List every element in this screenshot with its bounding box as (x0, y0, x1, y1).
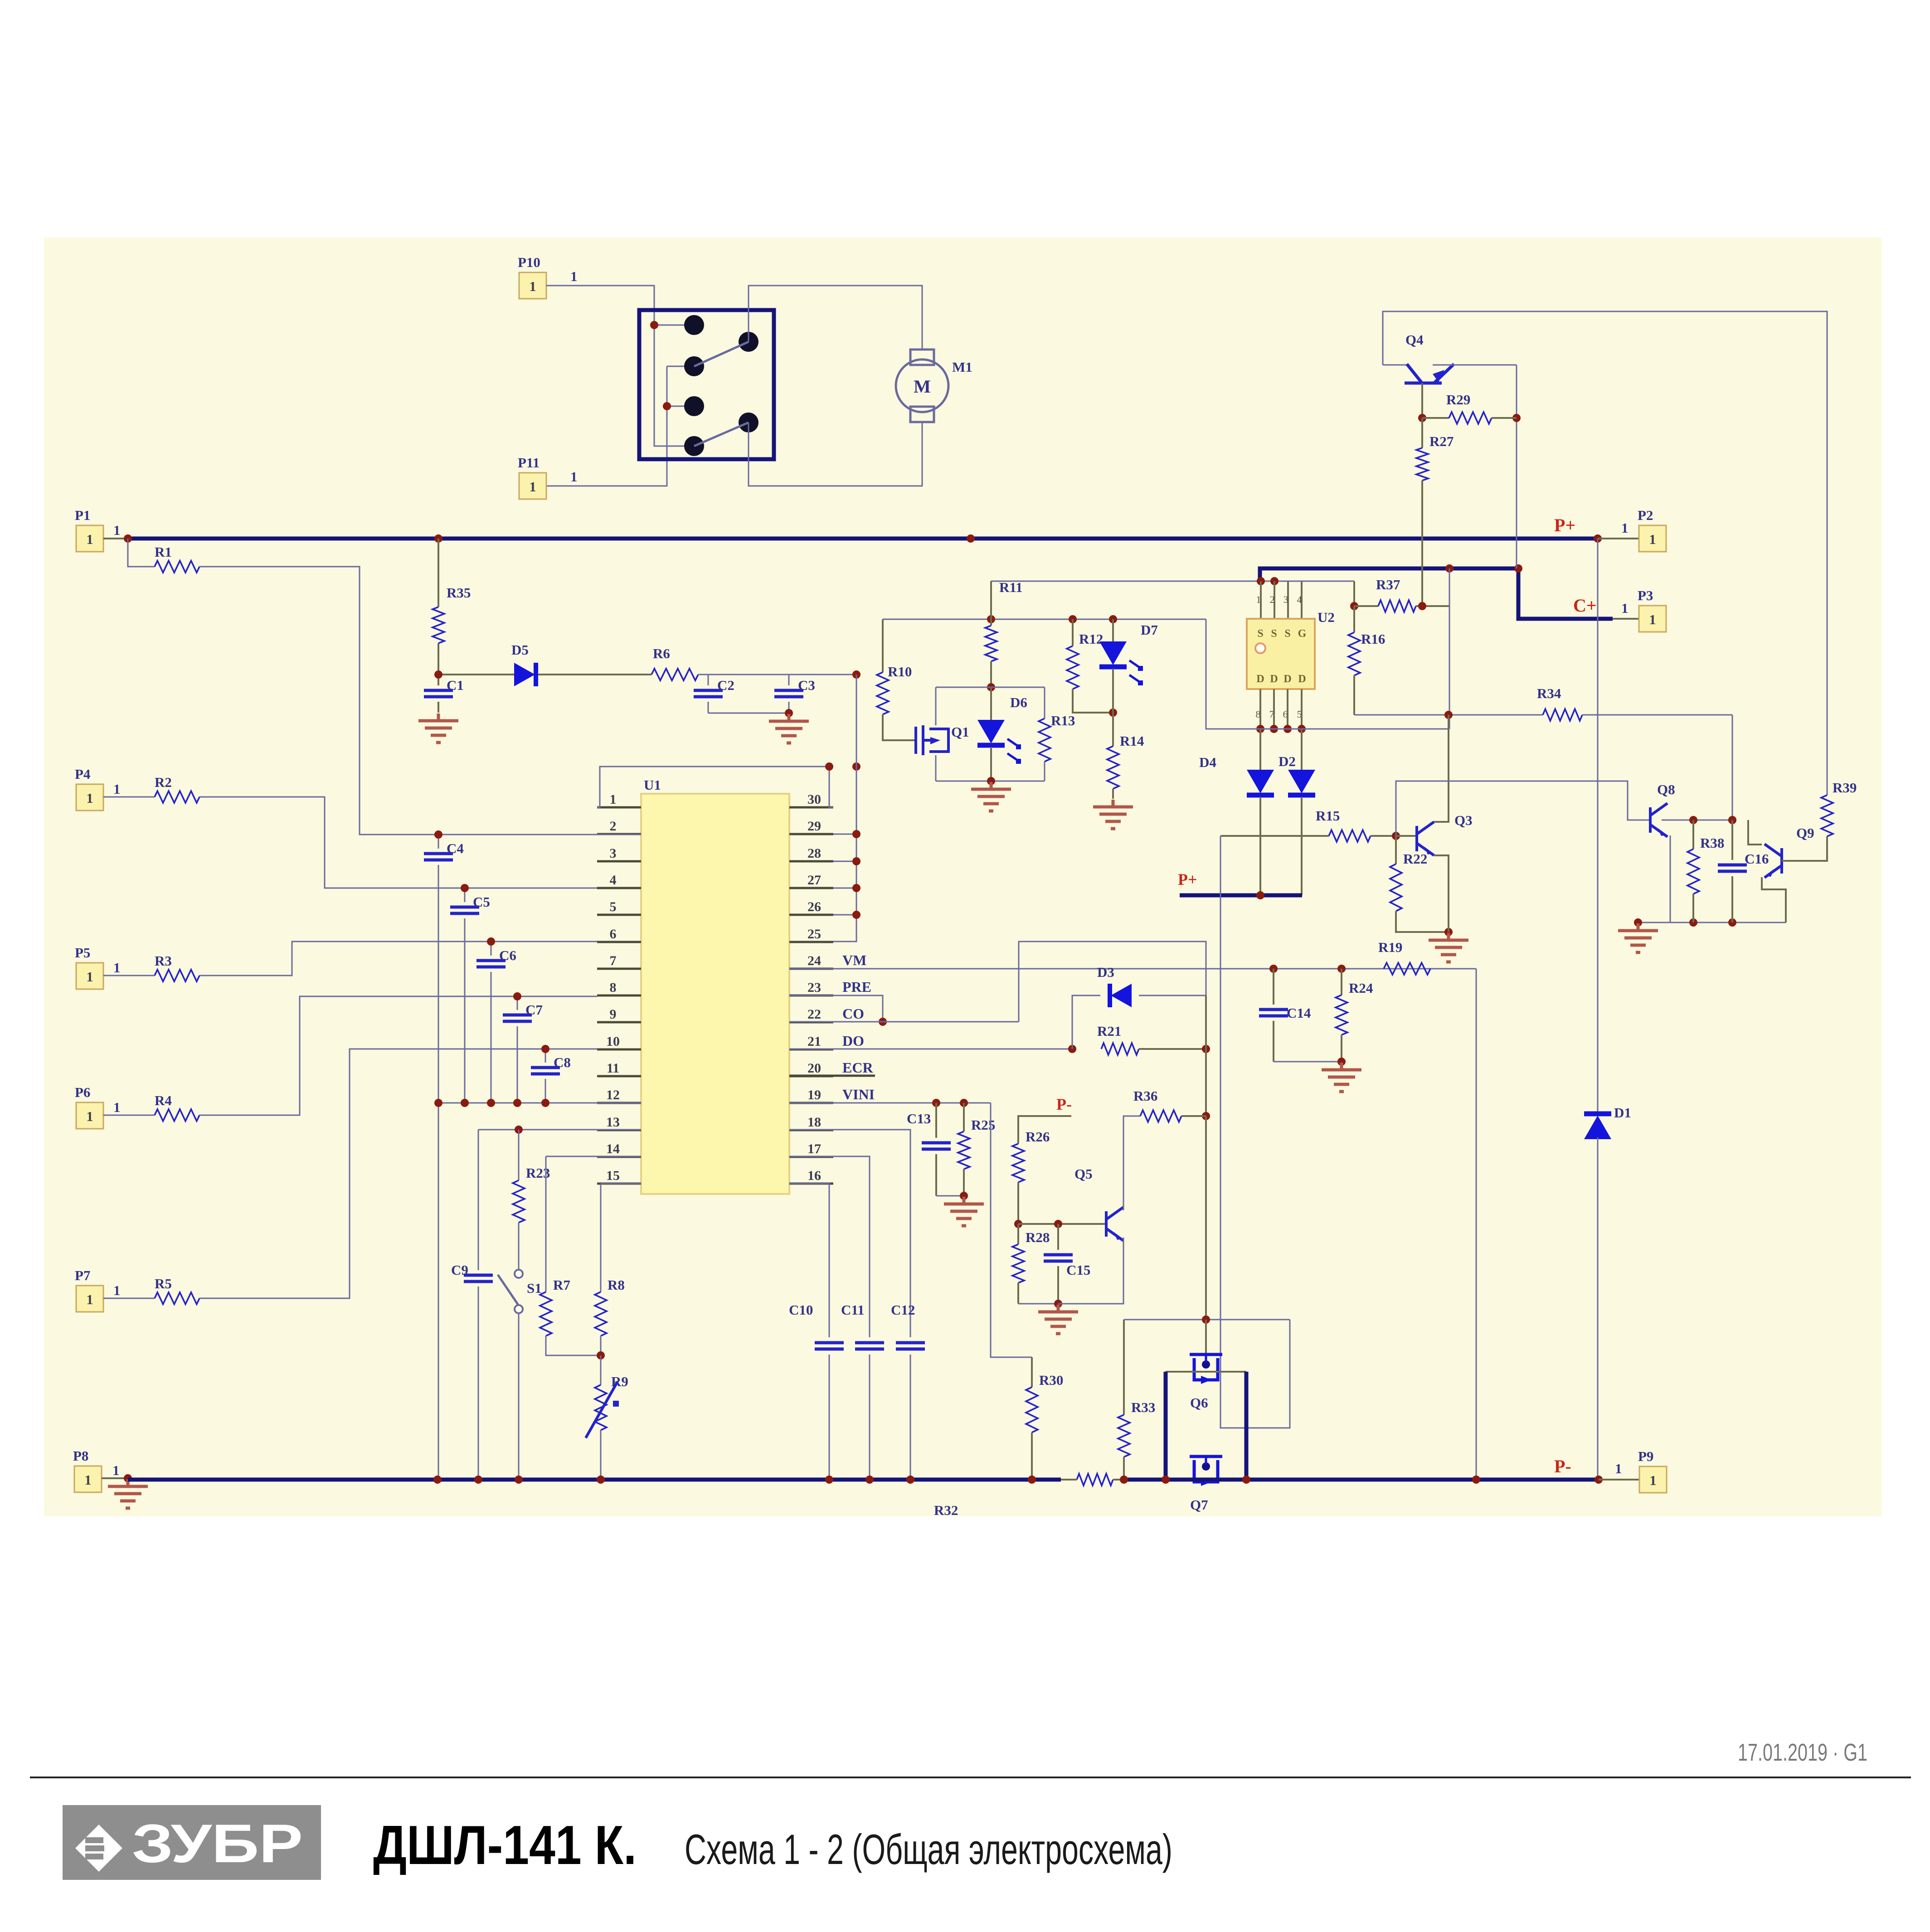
svg-text:P1: P1 (75, 507, 90, 523)
svg-text:CO: CO (842, 1005, 864, 1022)
svg-text:1: 1 (610, 792, 617, 807)
svg-text:29: 29 (807, 819, 821, 834)
svg-text:C11: C11 (841, 1302, 865, 1318)
svg-text:R28: R28 (1026, 1229, 1050, 1245)
svg-text:C9: C9 (451, 1262, 468, 1278)
svg-text:1: 1 (1621, 600, 1629, 616)
svg-text:C7: C7 (525, 1002, 543, 1018)
svg-text:1: 1 (529, 278, 536, 294)
svg-text:Q6: Q6 (1190, 1395, 1208, 1411)
svg-text:ECR: ECR (842, 1059, 873, 1076)
svg-text:R14: R14 (1120, 733, 1144, 749)
svg-text:C1: C1 (447, 677, 464, 693)
svg-text:R37: R37 (1376, 577, 1400, 592)
svg-text:1: 1 (113, 781, 121, 797)
svg-text:16: 16 (807, 1168, 821, 1183)
svg-text:M: M (914, 376, 931, 397)
svg-text:G: G (1298, 628, 1307, 640)
svg-text:28: 28 (807, 846, 821, 861)
svg-text:C5: C5 (473, 894, 490, 910)
svg-text:1: 1 (86, 790, 93, 806)
svg-text:24: 24 (807, 953, 821, 968)
svg-text:P6: P6 (75, 1084, 90, 1100)
svg-text:20: 20 (807, 1061, 821, 1076)
svg-text:17: 17 (807, 1141, 821, 1156)
svg-text:P9: P9 (1638, 1448, 1653, 1464)
svg-text:P+: P+ (1178, 870, 1197, 888)
svg-text:Схема 1 - 2 (Общая электросхем: Схема 1 - 2 (Общая электросхема) (685, 1825, 1172, 1873)
svg-text:R4: R4 (155, 1092, 172, 1108)
svg-text:1: 1 (113, 1099, 121, 1115)
svg-text:1: 1 (1621, 520, 1629, 536)
svg-text:5: 5 (610, 899, 617, 914)
svg-text:R35: R35 (447, 585, 471, 601)
svg-text:13: 13 (606, 1115, 620, 1130)
svg-text:1: 1 (1649, 612, 1656, 627)
svg-text:1: 1 (86, 1108, 93, 1124)
svg-text:P10: P10 (518, 254, 540, 270)
svg-text:R39: R39 (1833, 780, 1857, 796)
svg-text:21: 21 (807, 1034, 821, 1049)
svg-text:R12: R12 (1079, 631, 1103, 647)
svg-text:1: 1 (86, 969, 93, 985)
svg-text:3: 3 (610, 846, 617, 861)
svg-text:DO: DO (842, 1033, 864, 1049)
svg-text:1: 1 (529, 479, 536, 495)
svg-text:30: 30 (807, 792, 821, 807)
svg-text:1: 1 (113, 1282, 121, 1298)
svg-text:1: 1 (1615, 1461, 1622, 1476)
svg-text:R22: R22 (1403, 851, 1427, 867)
svg-text:U1: U1 (644, 777, 661, 793)
svg-text:R30: R30 (1039, 1372, 1063, 1388)
svg-text:11: 11 (607, 1061, 619, 1076)
svg-text:S: S (1284, 628, 1290, 640)
svg-text:C8: C8 (554, 1054, 571, 1070)
svg-text:Q8: Q8 (1657, 782, 1675, 797)
svg-text:1: 1 (112, 1462, 120, 1478)
svg-text:27: 27 (807, 873, 821, 888)
svg-text:26: 26 (807, 899, 821, 914)
svg-text:18: 18 (807, 1115, 821, 1130)
svg-text:Q5: Q5 (1074, 1166, 1093, 1182)
svg-text:1: 1 (84, 1472, 92, 1488)
svg-text:D: D (1270, 673, 1278, 685)
svg-text:C16: C16 (1745, 851, 1769, 867)
svg-text:R7: R7 (553, 1277, 570, 1293)
svg-text:R1: R1 (155, 544, 172, 560)
svg-text:1: 1 (570, 469, 578, 485)
svg-text:P3: P3 (1638, 587, 1653, 603)
svg-text:R25: R25 (971, 1117, 995, 1133)
svg-text:R8: R8 (608, 1277, 625, 1293)
svg-text:15: 15 (606, 1168, 620, 1183)
svg-text:1: 1 (1649, 1472, 1657, 1488)
svg-text:25: 25 (807, 927, 821, 942)
svg-text:17.01.2019 · G1: 17.01.2019 · G1 (1738, 1739, 1867, 1766)
svg-text:6: 6 (610, 927, 617, 942)
svg-text:PRE: PRE (842, 979, 871, 995)
svg-text:R27: R27 (1429, 433, 1454, 449)
svg-text:P4: P4 (75, 766, 90, 782)
svg-text:R32: R32 (934, 1502, 958, 1518)
svg-text:U2: U2 (1317, 609, 1335, 625)
svg-text:9: 9 (610, 1007, 617, 1022)
svg-text:VINI: VINI (842, 1086, 875, 1102)
svg-text:10: 10 (606, 1034, 620, 1049)
svg-text:R38: R38 (1700, 835, 1724, 851)
svg-text:R36: R36 (1133, 1088, 1157, 1104)
svg-text:R11: R11 (999, 579, 1023, 595)
svg-text:1: 1 (570, 268, 578, 284)
svg-text:C2: C2 (717, 677, 734, 693)
svg-text:ДШЛ-141 К.: ДШЛ-141 К. (373, 1814, 637, 1876)
svg-text:P5: P5 (75, 945, 90, 961)
svg-text:19: 19 (807, 1087, 821, 1102)
svg-text:D3: D3 (1097, 964, 1114, 980)
svg-text:S1: S1 (527, 1280, 542, 1296)
svg-text:C12: C12 (891, 1302, 915, 1318)
svg-text:Q3: Q3 (1454, 812, 1473, 828)
svg-text:R33: R33 (1131, 1399, 1155, 1415)
svg-text:R24: R24 (1349, 980, 1373, 996)
svg-text:P7: P7 (75, 1267, 90, 1283)
svg-text:S: S (1271, 628, 1277, 640)
svg-text:3: 3 (1283, 594, 1288, 605)
svg-text:C4: C4 (447, 840, 464, 856)
svg-text:R26: R26 (1026, 1129, 1050, 1145)
svg-text:D: D (1298, 673, 1306, 685)
svg-text:D: D (1256, 673, 1264, 685)
svg-text:D2: D2 (1279, 753, 1296, 769)
svg-text:8: 8 (610, 980, 617, 995)
svg-text:Q4: Q4 (1405, 332, 1424, 348)
svg-text:1: 1 (113, 522, 121, 538)
svg-text:D5: D5 (511, 642, 529, 658)
svg-text:P11: P11 (518, 455, 540, 471)
svg-text:Q7: Q7 (1190, 1497, 1208, 1513)
svg-text:C15: C15 (1066, 1262, 1090, 1278)
svg-text:R29: R29 (1446, 392, 1470, 408)
svg-text:1: 1 (86, 1291, 93, 1307)
svg-text:D1: D1 (1614, 1105, 1631, 1121)
svg-text:R3: R3 (155, 953, 172, 969)
svg-text:P+: P+ (1554, 515, 1575, 535)
svg-text:C13: C13 (907, 1111, 931, 1126)
svg-text:R34: R34 (1537, 685, 1561, 701)
svg-text:S: S (1257, 628, 1263, 640)
svg-text:22: 22 (807, 1007, 821, 1022)
svg-text:2: 2 (610, 819, 617, 834)
svg-text:P8: P8 (73, 1448, 88, 1464)
svg-text:12: 12 (606, 1087, 620, 1102)
svg-text:1: 1 (1256, 594, 1261, 605)
svg-text:D: D (1283, 673, 1291, 685)
svg-text:D7: D7 (1141, 622, 1158, 638)
svg-text:4: 4 (610, 873, 617, 888)
svg-text:R10: R10 (888, 664, 912, 680)
svg-text:R13: R13 (1051, 713, 1075, 728)
svg-text:D4: D4 (1199, 754, 1216, 770)
svg-text:P-: P- (1056, 1095, 1072, 1113)
svg-text:7: 7 (610, 953, 617, 968)
svg-text:14: 14 (606, 1141, 620, 1156)
svg-text:R21: R21 (1097, 1023, 1121, 1039)
svg-text:2: 2 (1270, 594, 1275, 605)
svg-text:R6: R6 (653, 646, 670, 661)
svg-text:Q1: Q1 (951, 724, 969, 740)
svg-text:C10: C10 (789, 1302, 813, 1318)
svg-text:ЗУБР: ЗУБР (132, 1813, 303, 1874)
svg-text:C14: C14 (1287, 1005, 1311, 1021)
svg-text:R15: R15 (1316, 808, 1340, 824)
svg-text:C3: C3 (798, 677, 815, 693)
svg-text:VM: VM (842, 952, 866, 968)
svg-text:C6: C6 (499, 947, 516, 963)
svg-text:R16: R16 (1361, 631, 1385, 647)
svg-text:M1: M1 (952, 359, 972, 375)
svg-text:1: 1 (1649, 531, 1656, 547)
svg-text:1: 1 (86, 531, 93, 547)
svg-text:D6: D6 (1010, 694, 1027, 710)
svg-text:4: 4 (1297, 594, 1302, 605)
svg-text:23: 23 (807, 980, 821, 995)
svg-text:R19: R19 (1378, 939, 1402, 955)
svg-text:P-: P- (1554, 1456, 1571, 1476)
svg-text:R5: R5 (155, 1276, 172, 1291)
svg-text:Q9: Q9 (1796, 825, 1814, 841)
svg-text:R2: R2 (155, 774, 172, 790)
svg-text:P2: P2 (1638, 507, 1653, 523)
svg-text:C+: C+ (1573, 595, 1597, 616)
svg-text:1: 1 (113, 960, 121, 976)
